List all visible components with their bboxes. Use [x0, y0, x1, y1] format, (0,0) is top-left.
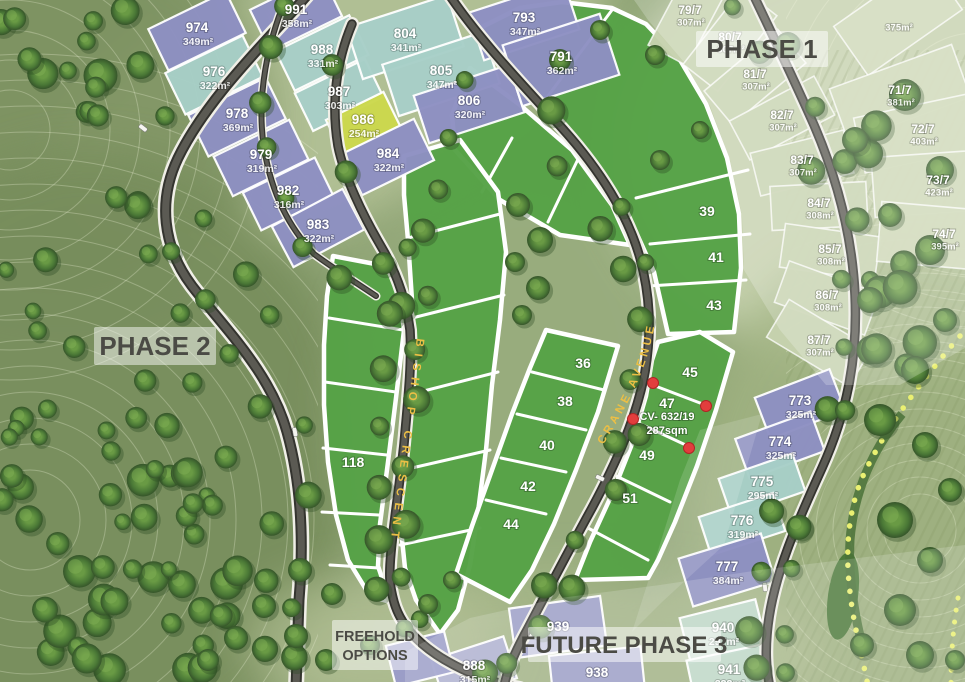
svg-text:322m²: 322m² — [304, 233, 335, 245]
svg-text:347m²: 347m² — [427, 79, 458, 91]
annotation-line1: CV- 632/19 — [639, 411, 694, 423]
svg-text:805: 805 — [430, 63, 453, 78]
phase-2-text: PHASE 2 — [99, 331, 210, 361]
svg-text:73/7: 73/7 — [926, 173, 950, 187]
masterplan-map: 974349m²976322m²978369m²979319m²982316m²… — [0, 0, 965, 682]
freehold-options-label: FREEHOLD OPTIONS — [332, 620, 418, 670]
svg-text:991: 991 — [285, 2, 308, 17]
svg-text:79/7: 79/7 — [678, 3, 702, 17]
svg-text:319m²: 319m² — [728, 529, 759, 541]
svg-text:308m²: 308m² — [814, 303, 841, 314]
svg-text:307m²: 307m² — [769, 123, 796, 134]
svg-text:987: 987 — [328, 84, 351, 99]
svg-text:986: 986 — [352, 112, 375, 127]
svg-text:295m²: 295m² — [748, 490, 779, 502]
svg-text:974: 974 — [186, 20, 209, 35]
phase-1-text: PHASE 1 — [706, 34, 817, 64]
future-phase-3-text: FUTURE PHASE 3 — [521, 632, 728, 659]
svg-text:384m²: 384m² — [713, 575, 744, 587]
svg-text:793: 793 — [513, 10, 536, 25]
svg-text:978: 978 — [226, 106, 249, 121]
boundary-marker — [628, 414, 639, 425]
svg-text:41: 41 — [708, 249, 724, 265]
phase-1-label: PHASE 1 — [696, 31, 828, 67]
svg-text:773: 773 — [789, 393, 812, 408]
svg-text:303m²: 303m² — [325, 100, 356, 112]
svg-text:36: 36 — [575, 355, 591, 371]
svg-text:976: 976 — [203, 64, 226, 79]
svg-text:308m²: 308m² — [806, 211, 833, 222]
svg-text:74/7: 74/7 — [932, 227, 956, 241]
svg-text:888: 888 — [463, 658, 486, 673]
svg-text:40: 40 — [539, 437, 555, 453]
svg-text:51: 51 — [622, 490, 638, 506]
svg-text:320m²: 320m² — [455, 109, 486, 121]
svg-text:331m²: 331m² — [308, 58, 339, 70]
svg-text:307m²: 307m² — [677, 18, 704, 29]
svg-text:45: 45 — [682, 364, 698, 380]
svg-text:982: 982 — [277, 183, 300, 198]
svg-text:322m²: 322m² — [715, 678, 746, 682]
svg-text:776: 776 — [731, 513, 754, 528]
svg-text:806: 806 — [458, 93, 481, 108]
svg-text:42: 42 — [520, 478, 536, 494]
svg-text:325m²: 325m² — [766, 450, 797, 462]
svg-text:43: 43 — [706, 297, 722, 313]
svg-text:308m²: 308m² — [817, 257, 844, 268]
svg-text:395m²: 395m² — [931, 242, 958, 253]
future-phase-3-label: FUTURE PHASE 3 — [521, 627, 728, 662]
svg-text:791: 791 — [550, 49, 573, 64]
svg-text:81/7: 81/7 — [743, 67, 767, 81]
svg-text:375m²: 375m² — [885, 23, 912, 34]
svg-text:86/7: 86/7 — [815, 288, 839, 302]
svg-text:44: 44 — [503, 516, 519, 532]
svg-text:322m²: 322m² — [374, 162, 405, 174]
svg-text:423m²: 423m² — [925, 188, 952, 199]
svg-text:83/7: 83/7 — [790, 153, 814, 167]
svg-text:381m²: 381m² — [887, 98, 914, 109]
svg-text:307m²: 307m² — [789, 168, 816, 179]
svg-text:325m²: 325m² — [786, 409, 817, 421]
boundary-marker — [648, 378, 659, 389]
svg-text:979: 979 — [250, 147, 273, 162]
svg-text:254m²: 254m² — [349, 128, 380, 140]
svg-text:71/7: 71/7 — [888, 83, 912, 97]
freehold-line2: OPTIONS — [342, 648, 408, 664]
svg-text:403m²: 403m² — [910, 137, 937, 148]
svg-text:369m²: 369m² — [223, 122, 254, 134]
boundary-marker — [684, 443, 695, 454]
svg-text:49: 49 — [639, 447, 655, 463]
svg-text:341m²: 341m² — [391, 42, 422, 54]
svg-text:988: 988 — [311, 42, 334, 57]
svg-text:774: 774 — [769, 434, 792, 449]
svg-text:84/7: 84/7 — [807, 196, 831, 210]
freehold-line1: FREEHOLD — [335, 629, 415, 645]
boundary-marker — [701, 401, 712, 412]
svg-text:941: 941 — [718, 662, 741, 677]
svg-text:47: 47 — [659, 395, 675, 411]
svg-text:72/7: 72/7 — [911, 122, 935, 136]
svg-text:319m²: 319m² — [247, 163, 278, 175]
svg-text:984: 984 — [377, 146, 400, 161]
svg-text:349m²: 349m² — [183, 36, 214, 48]
svg-text:322m²: 322m² — [200, 80, 231, 92]
svg-text:307m²: 307m² — [806, 348, 833, 359]
masterplan-svg: 974349m²976322m²978369m²979319m²982316m²… — [0, 0, 965, 682]
svg-text:307m²: 307m² — [742, 82, 769, 93]
svg-text:118: 118 — [342, 454, 365, 470]
svg-text:804: 804 — [394, 26, 417, 41]
svg-text:358m²: 358m² — [282, 18, 313, 30]
svg-text:938: 938 — [586, 665, 609, 680]
svg-text:775: 775 — [751, 474, 774, 489]
svg-text:347m²: 347m² — [510, 26, 541, 38]
svg-text:983: 983 — [307, 217, 330, 232]
svg-text:85/7: 85/7 — [818, 242, 842, 256]
svg-text:315m²: 315m² — [460, 674, 491, 682]
svg-text:38: 38 — [557, 393, 573, 409]
svg-text:87/7: 87/7 — [807, 333, 831, 347]
svg-text:316m²: 316m² — [274, 199, 305, 211]
annotation-line2: 287sqm — [647, 425, 688, 437]
svg-text:362m²: 362m² — [547, 65, 578, 77]
svg-text:82/7: 82/7 — [770, 108, 794, 122]
svg-text:39: 39 — [699, 203, 715, 219]
svg-text:777: 777 — [716, 559, 739, 574]
phase-2-label: PHASE 2 — [94, 327, 216, 365]
